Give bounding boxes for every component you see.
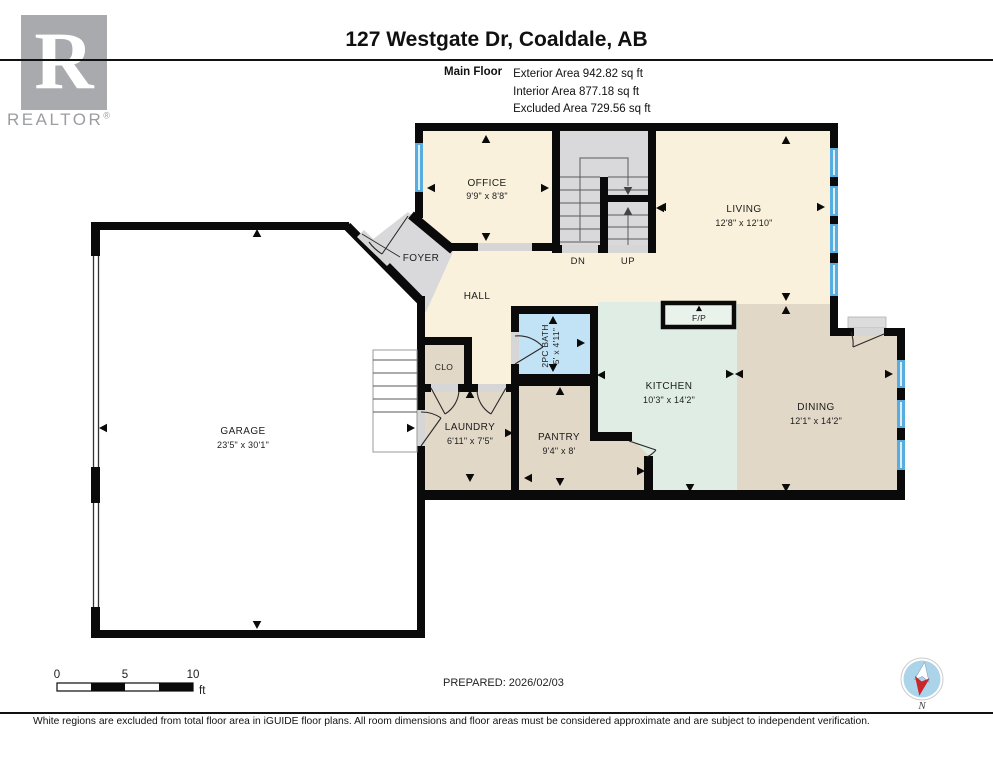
wall-top	[415, 123, 838, 131]
wall-living-right	[830, 123, 838, 148]
floorplan-page: R REALTOR® 127 Westgate Dr, Coaldale, AB…	[0, 0, 993, 768]
laundry-dims: 6'11" x 7'5"	[447, 436, 493, 446]
wall-bath-top	[511, 306, 598, 314]
prepared-date: PREPARED: 2026/02/03	[443, 677, 564, 689]
compass-face	[904, 661, 941, 698]
scale-bar-seg-1	[91, 683, 125, 691]
wall-clo-top	[417, 337, 472, 345]
wall-dining-right	[897, 328, 905, 360]
opening-stairs-dn	[562, 245, 598, 253]
wall-kitchen-jog	[590, 432, 632, 441]
wall-garage-top	[91, 222, 349, 230]
wall-stairs-left	[552, 123, 560, 251]
wall-house-left	[417, 446, 425, 500]
wall-office-left	[415, 131, 423, 143]
scale-tick-10: 10	[187, 669, 200, 681]
opening-stairs-up	[608, 245, 648, 253]
office-dims: 9'9" x 8'8"	[466, 191, 508, 201]
opening-clo-door	[431, 384, 458, 392]
wall-stairs-divider-v	[600, 177, 608, 253]
scale-bar: 0 5 10 ft	[54, 669, 206, 697]
wall-kitchen-left	[590, 306, 598, 440]
wall-kitchen-stub	[644, 456, 653, 500]
wall-living-right	[830, 177, 838, 186]
laundry-label: LAUNDRY	[445, 422, 495, 433]
wall-clo-bottom	[458, 384, 478, 392]
wall-garage-left	[91, 222, 100, 256]
garage-dims: 23'5" x 30'1"	[217, 440, 269, 450]
fireplace: F/P	[663, 303, 734, 327]
pantry-dims: 9'4" x 8'	[543, 446, 576, 456]
compass-north-label: N	[917, 700, 926, 712]
floor-plan: F/P OFFICE 9'9" x 8'8" LIVING	[0, 0, 993, 768]
wall-dining-top	[830, 328, 854, 336]
stairs-up-label: UP	[621, 256, 635, 267]
scale-bar-seg-2	[159, 683, 193, 691]
wall-pantry-left	[511, 374, 519, 500]
opening-bath-door	[511, 332, 519, 364]
garage-label: GARAGE	[220, 426, 265, 437]
scale-tick-5: 5	[122, 669, 128, 681]
fireplace-label: F/P	[692, 313, 706, 323]
dining-door-landing	[848, 317, 886, 328]
wall-garage-right	[417, 500, 425, 638]
scale-unit: ft	[199, 685, 206, 697]
office-label: OFFICE	[467, 178, 506, 189]
wall-bath-left	[511, 306, 519, 332]
garage-stairs-box	[373, 350, 417, 452]
opening-garage-door	[417, 410, 425, 446]
pantry-label: PANTRY	[538, 432, 580, 443]
wall-stairs-right	[648, 123, 656, 251]
dining-label: DINING	[797, 402, 834, 413]
foyer-label: FOYER	[403, 253, 439, 264]
wall-stairs-divider-h	[600, 195, 656, 202]
living-label: LIVING	[726, 204, 761, 215]
hall-label: HALL	[464, 291, 491, 302]
kitchen-label: KITCHEN	[646, 381, 693, 392]
garage-stairs	[373, 350, 417, 452]
wall-house-bottom	[417, 490, 905, 500]
scale-tick-0: 0	[54, 669, 60, 681]
footer-disclaimer: White regions are excluded from total fl…	[33, 716, 870, 727]
wall-dining-right	[897, 388, 905, 400]
wall-house-left	[417, 337, 425, 392]
wall-living-right	[830, 216, 838, 224]
wall-garage-bottom	[91, 630, 425, 638]
opening-dining-door	[854, 328, 884, 336]
wall-living-right	[830, 253, 838, 263]
kitchen-dims: 10'3" x 14'2"	[643, 395, 695, 405]
clo-label: CLO	[435, 362, 453, 372]
wall-house-left	[417, 392, 425, 410]
footer-divider	[0, 712, 993, 714]
opening-office-bottom	[478, 243, 532, 251]
living-dims: 12'8" x 12'10"	[715, 218, 772, 228]
bath-label: 2PC BATH	[540, 324, 550, 367]
wall-clo-right	[464, 337, 472, 392]
wall-stairs-bottom	[648, 245, 656, 253]
wall-bath-bottom	[511, 374, 598, 386]
compass-icon: N	[901, 658, 943, 712]
wall-garage-left-pier	[91, 467, 100, 503]
wall-stairs-bottom	[552, 245, 562, 253]
wall-laundry-top	[506, 384, 519, 392]
bath-dims: 5' x 4'11"	[551, 328, 561, 365]
dining-dims: 12'1" x 14'2"	[790, 416, 842, 426]
opening-laundry-door	[478, 384, 506, 392]
wall-dining-right	[897, 428, 905, 440]
stairs-dn-label: DN	[571, 256, 586, 267]
